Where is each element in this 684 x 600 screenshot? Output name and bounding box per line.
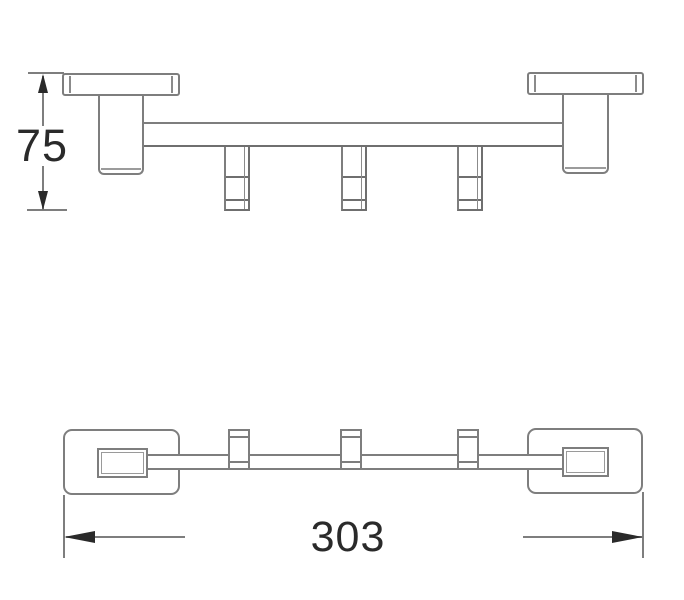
hook-1-plan: [228, 429, 250, 470]
length-dimension-label: 303: [288, 516, 408, 559]
height-dimension-label: 75: [10, 123, 74, 168]
mounting-post-right-side: [562, 95, 609, 174]
hook-cap-line: [459, 461, 477, 463]
mounting-post-left-side: [98, 96, 144, 175]
plate-edge-line: [171, 76, 173, 93]
arrow-up-icon: [38, 74, 48, 93]
length-extension-line-right: [642, 492, 644, 558]
plate-edge-line: [534, 75, 536, 92]
plate-edge-line: [635, 75, 637, 92]
hook-cap-line: [230, 461, 248, 463]
arrow-left-icon: [64, 531, 95, 543]
hook-2-plan: [340, 429, 362, 470]
post-inner-outline: [566, 451, 605, 473]
wall-plate-left-side: [62, 73, 180, 96]
hook-cap-line: [342, 461, 360, 463]
wall-plate-right-side: [527, 72, 644, 95]
post-bottom-shade-line: [101, 168, 141, 170]
technical-drawing-canvas: 75: [0, 0, 684, 600]
hook-edge-line: [477, 147, 479, 209]
length-extension-line-left: [63, 495, 65, 558]
post-bottom-shade-line: [565, 167, 606, 169]
hook-3-plan: [457, 429, 479, 470]
hook-2-side: [341, 147, 367, 211]
hook-3-side: [457, 147, 483, 211]
hook-edge-line: [361, 147, 363, 209]
arrow-down-icon: [38, 191, 48, 210]
mounting-post-right-plan: [562, 447, 609, 477]
arrow-right-icon: [612, 531, 643, 543]
hook-edge-line: [244, 147, 246, 209]
hook-cap-line: [230, 436, 248, 438]
hook-1-side: [224, 147, 250, 211]
post-inner-outline: [101, 452, 144, 474]
mounting-post-left-plan: [97, 448, 148, 478]
plate-edge-line: [69, 76, 71, 93]
rail-bar-side: [144, 122, 562, 147]
hook-cap-line: [459, 436, 477, 438]
hook-cap-line: [342, 436, 360, 438]
